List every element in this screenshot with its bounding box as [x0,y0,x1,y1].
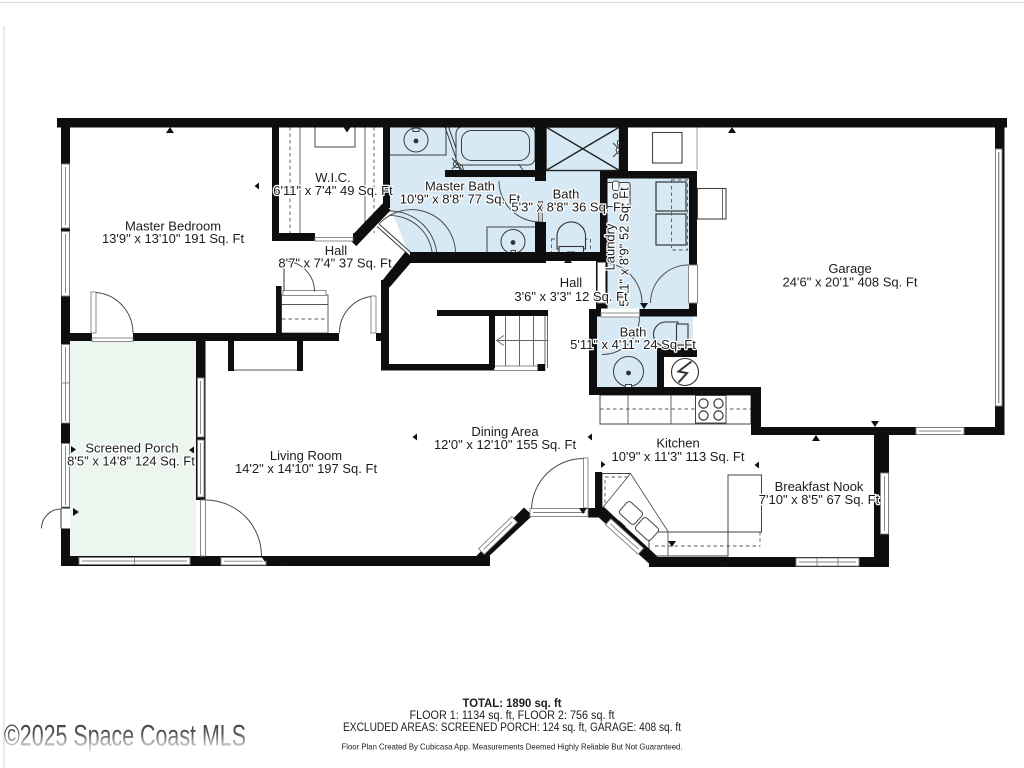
svg-text:©2025 Space Coast MLS: ©2025 Space Coast MLS [4,720,246,753]
svg-text:14'2" x 14'10" 197 Sq. Ft: 14'2" x 14'10" 197 Sq. Ft [235,461,378,476]
svg-text:12'0" x 12'10" 155 Sq. Ft: 12'0" x 12'10" 155 Sq. Ft [434,437,577,452]
svg-text:3'6" x 3'3" 12 Sq. Ft: 3'6" x 3'3" 12 Sq. Ft [514,289,628,304]
svg-text:13'9" x 13'10" 191 Sq. Ft: 13'9" x 13'10" 191 Sq. Ft [102,231,245,246]
svg-text:5'3" x 8'8" 36 Sq. Ft: 5'3" x 8'8" 36 Sq. Ft [511,200,625,215]
svg-text:EXCLUDED AREAS: SCREENED PORCH: EXCLUDED AREAS: SCREENED PORCH: 124 sq. … [343,722,682,734]
svg-text:Hall: Hall [560,275,583,290]
svg-text:8'5" x 14'8" 124 Sq. Ft: 8'5" x 14'8" 124 Sq. Ft [67,454,195,469]
svg-text:FLOOR 1: 1134 sq. ft, FLOOR 2:: FLOOR 1: 1134 sq. ft, FLOOR 2: 756 sq. f… [410,710,616,722]
svg-text:Floor Plan Created By Cubicasa: Floor Plan Created By Cubicasa App. Meas… [342,743,683,752]
svg-text:Laundry: Laundry [603,223,618,270]
svg-text:24'6" x 20'1" 408 Sq. Ft: 24'6" x 20'1" 408 Sq. Ft [783,275,918,290]
svg-text:10'9" x 11'3" 113 Sq. Ft: 10'9" x 11'3" 113 Sq. Ft [612,449,745,464]
svg-text:6'11" x 7'4" 49 Sq. Ft: 6'11" x 7'4" 49 Sq. Ft [273,183,393,198]
svg-text:TOTAL: 1890 sq. ft: TOTAL: 1890 sq. ft [463,698,562,710]
svg-text:5'11" x 4'11" 24 Sq. Ft: 5'11" x 4'11" 24 Sq. Ft [570,337,696,352]
svg-text:7'10" x 8'5" 67 Sq. Ft: 7'10" x 8'5" 67 Sq. Ft [759,492,880,507]
svg-text:8'7" x 7'4" 37 Sq. Ft: 8'7" x 7'4" 37 Sq. Ft [278,256,392,271]
svg-text:10'9" x 8'8" 77 Sq. Ft: 10'9" x 8'8" 77 Sq. Ft [400,192,521,207]
